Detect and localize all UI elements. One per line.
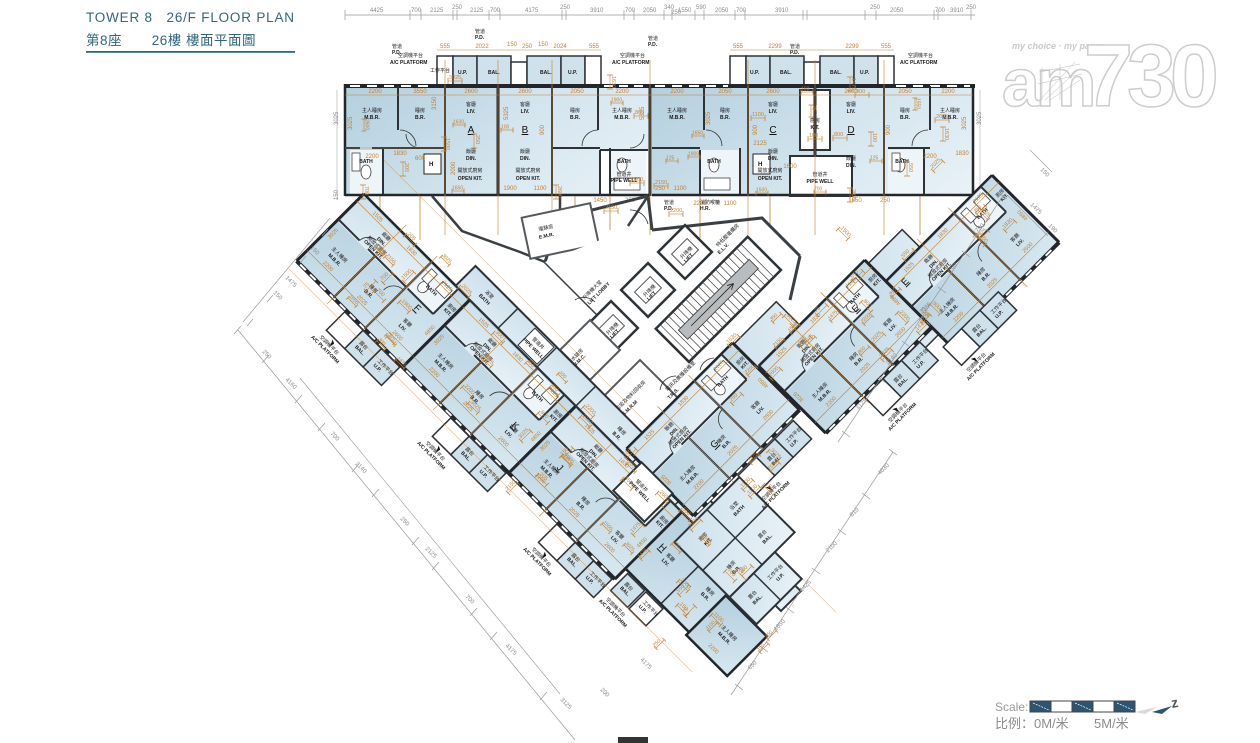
svg-text:4425: 4425	[370, 8, 384, 14]
svg-text:700: 700	[490, 8, 501, 14]
svg-text:1900: 1900	[503, 186, 517, 192]
svg-text:1100: 1100	[534, 186, 548, 192]
svg-text:555: 555	[589, 44, 600, 50]
svg-text:DIN.: DIN.	[466, 156, 477, 162]
svg-text:H.R.: H.R.	[700, 206, 711, 212]
svg-text:700: 700	[464, 594, 476, 606]
svg-text:客廳: 客廳	[466, 101, 476, 108]
svg-text:D: D	[847, 125, 854, 136]
svg-text:810: 810	[849, 507, 861, 519]
svg-text:z: z	[1170, 694, 1180, 711]
svg-text:C: C	[769, 125, 776, 136]
svg-text:250: 250	[655, 186, 666, 192]
svg-text:590: 590	[696, 5, 707, 11]
svg-text:4030: 4030	[877, 462, 891, 476]
svg-text:205: 205	[403, 163, 409, 172]
svg-text:飯廳: 飯廳	[768, 148, 778, 155]
svg-text:250: 250	[474, 135, 480, 144]
svg-text:700: 700	[363, 186, 369, 195]
svg-text:1650: 1650	[452, 186, 463, 192]
svg-text:250: 250	[870, 5, 881, 11]
svg-text:150: 150	[272, 290, 284, 302]
svg-text:2050: 2050	[715, 8, 729, 14]
svg-text:管道: 管道	[392, 43, 402, 50]
svg-text:BAL.: BAL.	[540, 70, 552, 76]
svg-text:4175: 4175	[525, 8, 539, 14]
svg-text:U.P.: U.P.	[860, 70, 870, 76]
svg-text:DIN.: DIN.	[520, 156, 531, 162]
svg-text:LIV.: LIV.	[769, 109, 778, 115]
svg-text:1900: 1900	[688, 152, 699, 158]
svg-text:150: 150	[801, 87, 810, 93]
svg-text:650: 650	[747, 660, 759, 672]
svg-text:2150: 2150	[605, 205, 617, 211]
svg-text:700: 700	[935, 8, 946, 14]
svg-text:250: 250	[652, 638, 662, 648]
svg-text:U.P.: U.P.	[568, 70, 578, 76]
svg-text:100: 100	[871, 133, 877, 142]
svg-text:2050: 2050	[898, 89, 912, 95]
svg-text:2200: 2200	[368, 89, 382, 95]
svg-text:管道: 管道	[475, 28, 485, 35]
svg-text:555: 555	[881, 44, 892, 50]
svg-text:3025: 3025	[706, 111, 712, 125]
svg-text:2125: 2125	[753, 141, 767, 147]
svg-text:250: 250	[452, 5, 463, 11]
svg-text:1100: 1100	[724, 201, 738, 207]
svg-text:700: 700	[329, 431, 341, 443]
svg-text:A/C PLATFORM: A/C PLATFORM	[390, 60, 427, 66]
svg-text:125: 125	[666, 156, 675, 162]
svg-text:900: 900	[886, 124, 892, 135]
svg-text:BATH: BATH	[617, 159, 631, 165]
svg-text:開放式廚房: 開放式廚房	[757, 167, 782, 174]
svg-text:1630: 1630	[943, 128, 949, 140]
svg-text:管道: 管道	[648, 35, 658, 42]
svg-text:LIV.: LIV.	[847, 109, 856, 115]
svg-text:2200: 2200	[365, 154, 379, 160]
svg-text:1850: 1850	[773, 618, 787, 632]
svg-text:2600: 2600	[464, 89, 478, 95]
svg-text:飯廳: 飯廳	[846, 155, 856, 162]
svg-text:主人睡房: 主人睡房	[612, 107, 632, 114]
svg-text:開放式廚房: 開放式廚房	[457, 167, 482, 174]
svg-text:U.P.: U.P.	[750, 70, 760, 76]
svg-text:飯廳: 飯廳	[520, 148, 530, 155]
svg-text:M.B.R.: M.B.R.	[669, 115, 685, 121]
svg-text:B.R.: B.R.	[720, 115, 731, 121]
svg-text:客廳: 客廳	[768, 101, 778, 108]
svg-text:2024: 2024	[553, 44, 567, 50]
svg-text:4175: 4175	[639, 657, 653, 671]
svg-text:比例：0M/米: 比例：0M/米	[995, 716, 1069, 731]
svg-text:管道: 管道	[790, 43, 800, 50]
svg-text:2600: 2600	[556, 186, 562, 198]
svg-text:工作平台: 工作平台	[430, 67, 450, 74]
svg-text:睡房: 睡房	[570, 107, 580, 114]
svg-text:第8座 26樓 樓面平面圖: 第8座 26樓 樓面平面圖	[86, 32, 256, 48]
svg-text:睡房: 睡房	[900, 107, 910, 114]
svg-text:4160: 4160	[284, 377, 298, 391]
svg-text:1830: 1830	[393, 151, 407, 157]
svg-text:客廳: 客廳	[520, 101, 530, 108]
svg-text:KIT.: KIT.	[811, 125, 821, 131]
svg-text:2150: 2150	[655, 180, 667, 186]
svg-text:管道井: 管道井	[616, 171, 631, 178]
svg-text:主人睡房: 主人睡房	[940, 107, 960, 114]
svg-text:1100: 1100	[752, 112, 764, 118]
svg-text:H: H	[429, 162, 433, 168]
svg-text:3910: 3910	[950, 8, 964, 14]
svg-text:2025: 2025	[850, 189, 856, 201]
svg-text:1630: 1630	[453, 120, 464, 126]
svg-text:2050: 2050	[718, 89, 732, 95]
svg-text:P.D.: P.D.	[790, 50, 800, 56]
svg-text:空調機平台: 空調機平台	[908, 52, 933, 59]
svg-text:OPEN KIT.: OPEN KIT.	[516, 176, 541, 182]
svg-text:555: 555	[733, 44, 744, 50]
svg-text:2600: 2600	[364, 119, 370, 130]
svg-text:100: 100	[809, 133, 818, 139]
svg-text:250: 250	[522, 44, 533, 50]
svg-text:空調機平台: 空調機平台	[398, 52, 423, 59]
svg-text:125: 125	[870, 156, 879, 162]
svg-text:2200: 2200	[941, 89, 955, 95]
svg-text:1630: 1630	[610, 76, 616, 88]
svg-text:2100: 2100	[825, 540, 839, 554]
svg-text:5M/米: 5M/米	[1094, 716, 1129, 731]
svg-text:B.R.: B.R.	[570, 115, 581, 121]
svg-text:am: am	[1002, 45, 1093, 121]
svg-text:250: 250	[966, 5, 977, 11]
svg-text:M.B.R.: M.B.R.	[614, 115, 630, 121]
svg-text:1550: 1550	[678, 8, 692, 14]
svg-text:1600: 1600	[783, 164, 797, 170]
svg-text:2299: 2299	[845, 44, 859, 50]
svg-text:1100: 1100	[674, 186, 688, 192]
svg-text:BAL.: BAL.	[780, 70, 792, 76]
svg-text:150: 150	[538, 42, 549, 48]
svg-text:P.D.: P.D.	[475, 35, 485, 41]
svg-text:1500: 1500	[756, 188, 767, 194]
svg-text:2600: 2600	[766, 89, 780, 95]
svg-text:555: 555	[440, 44, 451, 50]
svg-text:飯廳: 飯廳	[466, 148, 476, 155]
svg-text:1550: 1550	[915, 98, 921, 109]
svg-text:開放式廚房: 開放式廚房	[515, 167, 540, 174]
svg-text:2050: 2050	[570, 89, 584, 95]
svg-text:睡房: 睡房	[720, 107, 730, 114]
svg-text:P.D.: P.D.	[648, 42, 658, 48]
svg-text:2299: 2299	[768, 44, 782, 50]
svg-text:BATH: BATH	[707, 159, 721, 165]
svg-text:B.R.: B.R.	[415, 115, 426, 121]
svg-text:900: 900	[753, 124, 759, 135]
svg-text:150: 150	[507, 42, 518, 48]
svg-text:睡房: 睡房	[415, 107, 425, 114]
svg-text:700: 700	[411, 8, 422, 14]
svg-text:800: 800	[834, 132, 843, 138]
svg-text:TOWER 8 26/F FLOOR PLAN: TOWER 8 26/F FLOOR PLAN	[86, 10, 295, 25]
svg-text:消防喉轆: 消防喉轆	[700, 199, 720, 206]
svg-text:主人睡房: 主人睡房	[362, 107, 382, 114]
svg-text:A/C PLATFORM: A/C PLATFORM	[900, 60, 937, 66]
svg-text:2022: 2022	[475, 44, 489, 50]
svg-text:900: 900	[856, 89, 865, 95]
svg-text:3025: 3025	[348, 116, 354, 130]
svg-text:OPEN KIT.: OPEN KIT.	[758, 176, 783, 182]
svg-text:250: 250	[880, 198, 891, 204]
svg-text:2200: 2200	[615, 89, 629, 95]
svg-text:2050: 2050	[643, 8, 657, 14]
svg-text:OPEN KIT.: OPEN KIT.	[458, 176, 483, 182]
svg-text:客廳: 客廳	[846, 101, 856, 108]
svg-text:2125: 2125	[470, 8, 484, 14]
svg-text:3125: 3125	[559, 697, 573, 711]
svg-text:600: 600	[415, 156, 426, 162]
svg-text:BAL.: BAL.	[488, 70, 500, 76]
svg-text:LIV.: LIV.	[467, 109, 476, 115]
svg-text:DIN.: DIN.	[768, 156, 779, 162]
svg-text:1500: 1500	[631, 177, 643, 183]
svg-text:B: B	[522, 125, 529, 136]
svg-text:Scale:: Scale:	[995, 700, 1028, 714]
svg-text:PIPE WELL: PIPE WELL	[807, 179, 834, 185]
svg-text:1450: 1450	[593, 198, 607, 204]
svg-text:700: 700	[625, 8, 636, 14]
svg-text:管道: 管道	[664, 199, 674, 206]
svg-text:2050: 2050	[890, 8, 904, 14]
svg-text:LIV.: LIV.	[521, 109, 530, 115]
svg-text:3550: 3550	[413, 89, 427, 95]
svg-text:1500: 1500	[444, 138, 450, 150]
svg-text:730: 730	[1084, 26, 1216, 125]
svg-text:3910: 3910	[590, 8, 604, 14]
svg-text:空調機平台: 空調機平台	[620, 52, 645, 59]
svg-text:100: 100	[501, 125, 510, 131]
svg-text:主人睡房: 主人睡房	[667, 107, 687, 114]
svg-text:250: 250	[560, 5, 571, 11]
svg-text:2000: 2000	[451, 161, 457, 175]
svg-text:B.R.: B.R.	[900, 115, 911, 121]
svg-text:200: 200	[599, 687, 611, 699]
svg-text:2600: 2600	[518, 89, 532, 95]
svg-text:A/C PLATFORM: A/C PLATFORM	[612, 60, 649, 66]
svg-text:700: 700	[736, 8, 747, 14]
svg-text:DIN.: DIN.	[846, 163, 857, 169]
svg-text:250: 250	[399, 516, 411, 528]
svg-text:2125: 2125	[430, 8, 444, 14]
svg-text:900: 900	[540, 124, 546, 135]
svg-text:5325: 5325	[504, 106, 510, 120]
svg-text:3025: 3025	[962, 116, 968, 130]
svg-text:2200: 2200	[670, 89, 684, 95]
svg-text:3910: 3910	[775, 8, 789, 14]
svg-text:1900: 1900	[611, 98, 622, 104]
svg-text:P.D.: P.D.	[392, 50, 402, 56]
svg-text:3150: 3150	[432, 96, 438, 110]
svg-text:700: 700	[814, 187, 823, 193]
svg-text:BAL.: BAL.	[830, 70, 842, 76]
svg-text:2200: 2200	[670, 208, 682, 214]
svg-text:3025: 3025	[449, 75, 461, 81]
svg-text:1650: 1650	[692, 131, 703, 137]
svg-text:800: 800	[635, 110, 644, 116]
svg-text:1425: 1425	[799, 579, 813, 593]
svg-text:2025: 2025	[936, 114, 948, 120]
svg-text:550: 550	[907, 163, 913, 172]
svg-text:1830: 1830	[955, 151, 969, 157]
svg-text:1475: 1475	[284, 275, 298, 289]
svg-text:75: 75	[811, 105, 817, 111]
